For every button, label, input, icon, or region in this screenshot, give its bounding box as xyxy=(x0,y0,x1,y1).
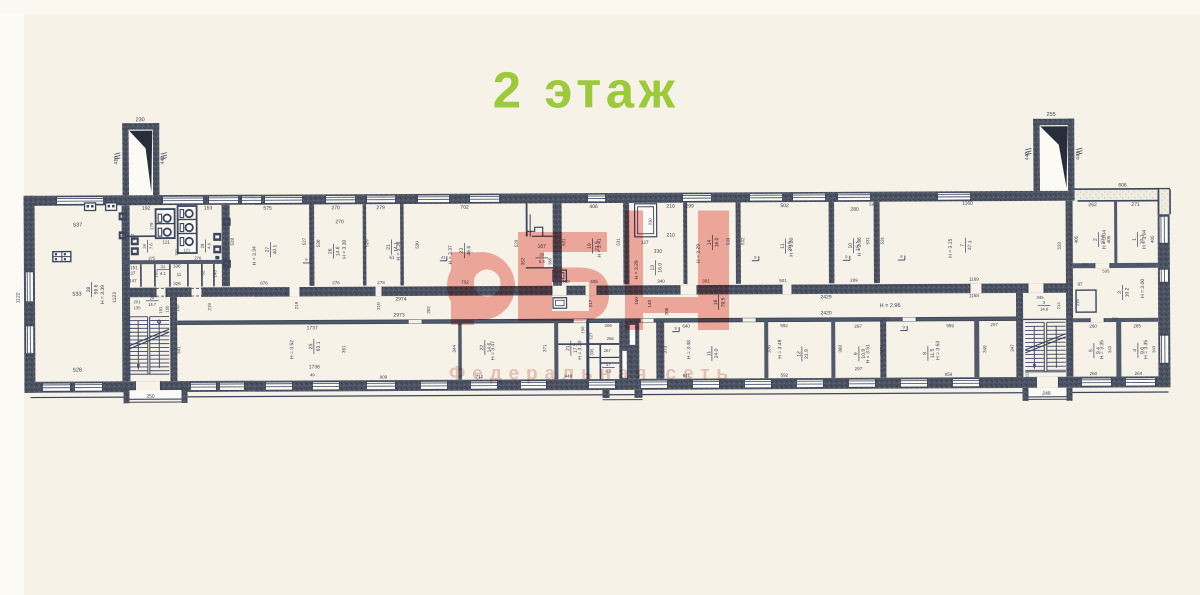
svg-text:876: 876 xyxy=(260,281,268,286)
svg-text:41: 41 xyxy=(441,255,446,260)
svg-text:151: 151 xyxy=(130,265,138,270)
svg-text:405: 405 xyxy=(1150,235,1155,243)
svg-text:H = 3.35: H = 3.35 xyxy=(1143,340,1149,359)
svg-text:361: 361 xyxy=(1081,262,1089,267)
svg-text:592: 592 xyxy=(780,323,788,328)
svg-text:2 этаж: 2 этаж xyxy=(493,62,680,119)
svg-text:859: 859 xyxy=(945,372,953,377)
svg-text:702: 702 xyxy=(460,205,469,211)
svg-text:405: 405 xyxy=(1106,235,1111,243)
svg-text:150: 150 xyxy=(165,305,170,313)
svg-text:210: 210 xyxy=(376,302,381,310)
svg-text:535: 535 xyxy=(1112,316,1119,321)
svg-text:255: 255 xyxy=(1047,112,1056,118)
svg-text:207: 207 xyxy=(990,322,998,327)
svg-text:H = 3.38: H = 3.38 xyxy=(396,241,402,260)
svg-text:279: 279 xyxy=(376,205,385,211)
svg-text:271: 271 xyxy=(1136,262,1144,267)
svg-text:202: 202 xyxy=(426,306,431,314)
svg-text:49: 49 xyxy=(310,372,315,377)
svg-text:219: 219 xyxy=(294,301,299,309)
svg-text:344: 344 xyxy=(452,344,457,352)
svg-text:179: 179 xyxy=(149,222,154,230)
svg-text:73: 73 xyxy=(567,289,572,294)
svg-text:47.1: 47.1 xyxy=(967,240,973,250)
svg-text:280: 280 xyxy=(850,207,859,213)
svg-text:216: 216 xyxy=(1075,298,1080,306)
svg-text:297: 297 xyxy=(855,366,863,371)
svg-text:405: 405 xyxy=(1074,235,1079,243)
svg-text:528: 528 xyxy=(230,238,235,246)
svg-text:H = 3.49: H = 3.49 xyxy=(777,339,783,358)
svg-text:12: 12 xyxy=(796,351,802,357)
svg-text:330: 330 xyxy=(654,249,663,255)
svg-text:10.2: 10.2 xyxy=(1124,287,1130,297)
svg-text:H = 2.96: H = 2.96 xyxy=(880,303,901,309)
svg-text:299: 299 xyxy=(685,204,694,210)
svg-text:H = 3.53: H = 3.53 xyxy=(935,341,941,360)
svg-text:63.1: 63.1 xyxy=(316,341,322,351)
svg-text:340: 340 xyxy=(657,279,665,284)
svg-text:1: 1 xyxy=(1132,238,1138,241)
svg-text:2974: 2974 xyxy=(395,296,406,302)
svg-text:531: 531 xyxy=(616,238,621,246)
svg-text:289: 289 xyxy=(850,278,858,283)
svg-text:2420: 2420 xyxy=(821,310,832,316)
svg-text:1736: 1736 xyxy=(309,364,320,370)
svg-text:271: 271 xyxy=(1131,202,1140,208)
svg-text:4.1: 4.1 xyxy=(160,271,167,276)
svg-text:2429: 2429 xyxy=(820,294,831,300)
svg-text:1737: 1737 xyxy=(307,325,318,331)
svg-text:14.6: 14.6 xyxy=(1040,307,1049,312)
svg-text:H = 3.48: H = 3.48 xyxy=(686,340,692,359)
svg-text:230: 230 xyxy=(136,117,145,123)
svg-text:4.6: 4.6 xyxy=(206,242,211,249)
svg-text:H = 3.47: H = 3.47 xyxy=(490,341,496,360)
svg-text:14.7: 14.7 xyxy=(148,302,157,307)
svg-text:640: 640 xyxy=(682,324,690,329)
svg-text:297: 297 xyxy=(854,324,862,329)
svg-text:147: 147 xyxy=(129,278,137,283)
svg-text:1168: 1168 xyxy=(969,293,979,298)
svg-text:206: 206 xyxy=(605,323,613,328)
svg-text:127: 127 xyxy=(588,332,593,340)
svg-text:Федеральная сеть: Федеральная сеть xyxy=(449,364,735,385)
svg-text:266: 266 xyxy=(607,336,615,341)
svg-text:H = 3.34: H = 3.34 xyxy=(252,246,258,265)
svg-text:5: 5 xyxy=(1088,349,1094,352)
svg-text:H = 3.52: H = 3.52 xyxy=(289,340,295,359)
svg-text:11: 11 xyxy=(706,351,712,356)
svg-text:592: 592 xyxy=(781,373,789,378)
svg-text:37: 37 xyxy=(130,271,136,276)
svg-text:2: 2 xyxy=(1093,238,1099,241)
svg-text:527: 527 xyxy=(302,237,307,245)
svg-text:276: 276 xyxy=(194,255,202,260)
svg-text:22: 22 xyxy=(479,345,485,351)
svg-text:13: 13 xyxy=(650,265,656,271)
svg-text:10: 10 xyxy=(848,243,854,249)
svg-text:809: 809 xyxy=(380,375,388,380)
svg-text:210: 210 xyxy=(667,233,676,239)
svg-text:21: 21 xyxy=(565,345,571,351)
svg-text:343: 343 xyxy=(1151,345,1156,353)
svg-text:H = 3.51: H = 3.51 xyxy=(865,344,871,363)
svg-text:370: 370 xyxy=(767,345,772,353)
svg-text:63: 63 xyxy=(28,352,34,357)
svg-text:153: 153 xyxy=(204,205,213,211)
svg-text:365: 365 xyxy=(547,257,552,265)
svg-text:262: 262 xyxy=(1088,202,1097,208)
svg-text:533: 533 xyxy=(72,292,81,298)
svg-text:112: 112 xyxy=(1024,371,1029,378)
svg-text:15.0: 15.0 xyxy=(657,263,663,273)
svg-text:28: 28 xyxy=(86,286,92,292)
svg-text:230: 230 xyxy=(648,218,653,226)
svg-text:341: 341 xyxy=(176,346,181,354)
svg-text:441: 441 xyxy=(1075,151,1081,160)
svg-text:278: 278 xyxy=(377,280,385,285)
svg-text:219: 219 xyxy=(207,303,212,311)
svg-text:531: 531 xyxy=(880,236,885,244)
svg-text:442: 442 xyxy=(1024,152,1030,161)
svg-text:31: 31 xyxy=(161,264,166,269)
svg-text:528: 528 xyxy=(73,368,82,374)
svg-text:270: 270 xyxy=(331,205,340,211)
svg-text:267: 267 xyxy=(604,348,612,353)
svg-text:14.6: 14.6 xyxy=(335,246,341,256)
svg-text:264: 264 xyxy=(1135,371,1143,376)
svg-text:367: 367 xyxy=(879,346,884,354)
svg-text:21: 21 xyxy=(386,244,392,250)
svg-text:535: 535 xyxy=(1102,269,1110,274)
svg-text:406: 406 xyxy=(589,204,598,210)
svg-text:201: 201 xyxy=(134,299,142,304)
svg-text:11: 11 xyxy=(177,272,182,277)
svg-text:25: 25 xyxy=(308,343,314,349)
svg-text:533: 533 xyxy=(1057,241,1062,249)
svg-text:248: 248 xyxy=(1042,391,1051,397)
svg-text:270: 270 xyxy=(335,219,344,225)
svg-text:336: 336 xyxy=(173,264,181,269)
svg-text:165: 165 xyxy=(153,270,158,278)
svg-text:260: 260 xyxy=(1090,371,1098,376)
svg-text:530: 530 xyxy=(415,241,420,249)
svg-text:170: 170 xyxy=(122,385,127,392)
svg-text:121: 121 xyxy=(162,240,170,245)
svg-text:191: 191 xyxy=(158,306,163,314)
svg-text:40.1: 40.1 xyxy=(272,244,278,254)
svg-text:959: 959 xyxy=(946,323,954,328)
svg-text:210: 210 xyxy=(666,204,675,210)
svg-text:28: 28 xyxy=(200,243,205,248)
svg-text:H = 3.30: H = 3.30 xyxy=(342,239,348,258)
svg-text:419: 419 xyxy=(113,156,119,165)
svg-text:532: 532 xyxy=(740,237,745,245)
svg-text:373: 373 xyxy=(663,345,668,353)
svg-text:335: 335 xyxy=(589,348,594,356)
svg-text:119: 119 xyxy=(180,385,185,392)
svg-text:606: 606 xyxy=(1118,182,1127,188)
svg-text:121: 121 xyxy=(183,247,190,252)
svg-text:347: 347 xyxy=(1010,344,1015,352)
svg-text:H = 3.39: H = 3.39 xyxy=(100,285,106,304)
svg-text:502: 502 xyxy=(780,203,789,209)
svg-text:343: 343 xyxy=(1107,345,1112,353)
svg-text:1169: 1169 xyxy=(969,277,979,282)
svg-text:349: 349 xyxy=(982,345,987,353)
svg-text:265: 265 xyxy=(1133,323,1141,328)
svg-text:H = 3.36: H = 3.36 xyxy=(857,237,863,256)
svg-text:8: 8 xyxy=(922,352,928,355)
svg-text:1122: 1122 xyxy=(15,292,21,303)
svg-text:2973: 2973 xyxy=(394,312,405,318)
svg-text:24.0: 24.0 xyxy=(714,348,720,358)
svg-text:531: 531 xyxy=(865,236,870,244)
svg-text:275: 275 xyxy=(148,256,156,261)
svg-text:1123: 1123 xyxy=(112,292,118,303)
svg-text:59.6: 59.6 xyxy=(93,284,99,294)
svg-text:H = 3.15: H = 3.15 xyxy=(948,239,954,258)
svg-text:9: 9 xyxy=(853,352,859,355)
svg-text:150: 150 xyxy=(580,326,585,334)
svg-text:260: 260 xyxy=(1089,324,1097,329)
svg-text:214: 214 xyxy=(1056,302,1061,310)
svg-text:28: 28 xyxy=(150,295,155,300)
svg-text:276: 276 xyxy=(332,280,340,285)
svg-text:575: 575 xyxy=(263,206,272,212)
svg-text:11: 11 xyxy=(780,243,786,248)
svg-text:H = 3.35: H = 3.35 xyxy=(1099,340,1105,359)
svg-text:21.9: 21.9 xyxy=(804,349,810,359)
svg-text:368: 368 xyxy=(838,345,843,353)
svg-text:97: 97 xyxy=(1077,282,1083,287)
svg-text:51: 51 xyxy=(389,255,395,260)
svg-text:27: 27 xyxy=(265,247,271,253)
svg-text:326: 326 xyxy=(173,281,181,286)
svg-text:32: 32 xyxy=(200,270,205,276)
svg-text:H = 3.04: H = 3.04 xyxy=(1142,230,1148,249)
svg-text:501: 501 xyxy=(779,278,787,283)
svg-text:192: 192 xyxy=(142,206,151,212)
svg-text:1160: 1160 xyxy=(962,201,973,207)
svg-text:7: 7 xyxy=(960,244,966,247)
svg-text:150: 150 xyxy=(174,248,179,255)
svg-text:3: 3 xyxy=(1117,291,1123,294)
svg-text:537: 537 xyxy=(73,223,82,229)
svg-text:529: 529 xyxy=(364,239,369,247)
svg-text:34: 34 xyxy=(142,243,147,248)
svg-text:371: 371 xyxy=(542,344,547,352)
svg-text:7.6: 7.6 xyxy=(148,243,153,250)
svg-text:26: 26 xyxy=(328,248,334,254)
svg-text:250: 250 xyxy=(146,394,155,400)
svg-text:530: 530 xyxy=(316,239,321,247)
svg-text:H = 3.00: H = 3.00 xyxy=(1140,279,1146,298)
svg-text:135: 135 xyxy=(134,305,142,310)
svg-text:H = 3.30: H = 3.30 xyxy=(789,237,795,256)
svg-text:73: 73 xyxy=(283,291,288,296)
svg-text:361: 361 xyxy=(341,345,346,353)
svg-text:4: 4 xyxy=(1132,349,1138,352)
svg-text:933: 933 xyxy=(628,356,633,364)
svg-text:H = 3.30: H = 3.30 xyxy=(577,340,583,359)
svg-text:145: 145 xyxy=(212,270,217,278)
svg-text:441: 441 xyxy=(160,156,166,165)
